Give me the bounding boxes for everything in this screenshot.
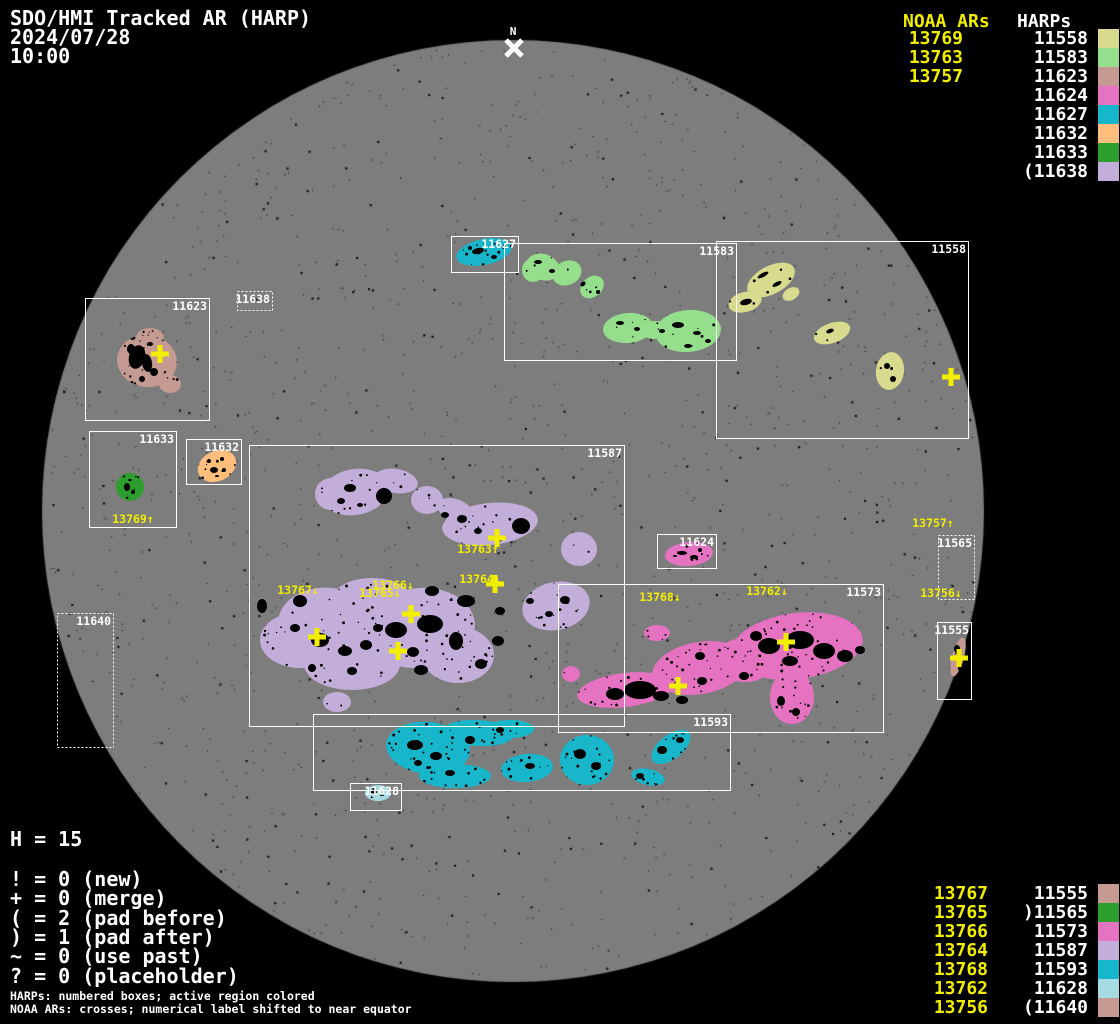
legend-row: 1376411587	[900, 941, 1119, 960]
sunspot-patch	[376, 488, 392, 504]
sunspot-patch	[758, 638, 780, 654]
legend-noaa-number: 13769	[909, 29, 963, 48]
legend-color-swatch	[1098, 922, 1119, 941]
legend-row: 1376911558	[900, 29, 1119, 48]
sunspot-patch	[855, 646, 865, 654]
legend-row: 11627	[900, 105, 1119, 124]
harp-box-label-11558: 11558	[931, 242, 966, 256]
legend-color-swatch	[1098, 67, 1119, 86]
noaa-ar-label-13762: 13762↓	[746, 584, 788, 598]
sunspot-patch	[526, 598, 534, 604]
region-blob	[561, 532, 597, 566]
footnote-noaa: NOAA ARs: crosses; numerical label shift…	[10, 1003, 412, 1015]
north-label: N	[510, 25, 517, 38]
sunspot-patch	[837, 650, 853, 662]
sunspot-patch	[338, 646, 352, 656]
legend-row: 1376611573	[900, 922, 1119, 941]
noaa-ar-label-13763: 13763↑	[457, 542, 499, 556]
sunspot-patch	[131, 490, 135, 494]
sunspot-patch	[468, 246, 472, 250]
sunspot-patch	[653, 691, 669, 701]
sunspot-patch	[890, 376, 896, 382]
sunspot-patch	[215, 475, 219, 477]
sunspot-patch	[813, 643, 835, 659]
region-blob	[640, 321, 670, 339]
legend-color-swatch	[1098, 903, 1119, 922]
sunspot-patch	[445, 770, 455, 776]
sunspot-patch	[491, 255, 497, 259]
region-blob	[562, 666, 580, 682]
noaa-ar-label-13768: 13768↓	[639, 590, 681, 604]
north-pole-cross	[506, 40, 522, 56]
sunspot-patch	[385, 622, 407, 638]
sunspot-patch	[695, 652, 705, 660]
sunspot-patch	[139, 376, 145, 382]
legend-harp-number: 11628	[1034, 979, 1088, 998]
legend-noaa-number: 13767	[934, 884, 988, 903]
harp-box-label-11565: 11565	[937, 536, 972, 550]
harp-box-label-11555: 11555	[934, 623, 969, 637]
sunspot-patch	[360, 640, 372, 650]
legend-row: (11638	[900, 162, 1119, 181]
legend-noaa-number: 13766	[934, 922, 988, 941]
sunspot-patch	[693, 331, 701, 335]
sunspot-patch	[676, 696, 688, 704]
sunspot-patch	[684, 344, 692, 348]
legend-harp-number: )11565	[1023, 903, 1088, 922]
sunspot-patch	[512, 518, 530, 534]
legend-harp-number: (11640	[1023, 998, 1088, 1017]
sunspot-patch	[127, 344, 135, 354]
sunspot-patch	[636, 773, 644, 779]
sunspot-patch	[495, 607, 505, 615]
sunspot-patch	[677, 551, 687, 555]
sunspot-patch	[337, 498, 345, 504]
sunspot-patch	[257, 599, 267, 613]
region-blob	[630, 766, 667, 789]
sunspot-patch	[884, 363, 890, 369]
sunspot-patch	[128, 479, 132, 481]
region-blob	[323, 692, 351, 712]
legend-color-swatch	[1098, 124, 1119, 143]
sunspot-patch	[672, 322, 684, 328]
legend-color-swatch	[1098, 48, 1119, 67]
sunspot-patch	[591, 762, 601, 770]
sunspot-patch	[496, 727, 504, 733]
sunspot-patch	[549, 269, 555, 273]
legend-color-swatch	[1098, 960, 1119, 979]
legend-harp-number: 11632	[1034, 124, 1088, 143]
legend-noaa-number: 13768	[934, 960, 988, 979]
legend-noaa-number: 13762	[934, 979, 988, 998]
legend-harp-number: 11627	[1034, 105, 1088, 124]
status-counter-line: ? = 0 (placeholder)	[10, 967, 239, 986]
sunspot-patch	[492, 636, 504, 646]
sunspot-patch	[124, 483, 130, 491]
legend-row: 1375711623	[900, 67, 1119, 86]
legend-color-swatch	[1098, 29, 1119, 48]
sunspot-patch	[659, 329, 665, 333]
legend-color-swatch	[1098, 979, 1119, 998]
sunspot-patch	[560, 596, 570, 604]
legend-harp-number: 11587	[1034, 941, 1088, 960]
sunspot-patch	[616, 321, 624, 325]
legend-color-swatch	[1098, 86, 1119, 105]
sunspot-patch	[457, 595, 475, 607]
legend-harp-number: 11573	[1034, 922, 1088, 941]
sunspot-patch	[475, 659, 487, 669]
sunspot-patch	[150, 368, 158, 376]
sunspot-patch	[782, 656, 798, 666]
active-region-11558	[726, 255, 907, 391]
sunspot-patch	[147, 342, 153, 346]
sunspot-patch	[357, 503, 363, 507]
legend-harp-number: 11555	[1034, 884, 1088, 903]
legend-harp-number: 11558	[1034, 29, 1088, 48]
legend-harp-number: 11593	[1034, 960, 1088, 979]
sunspot-patch	[705, 339, 711, 343]
legend-noaa-number: 13756	[934, 998, 988, 1017]
noaa-ar-label-13765: 13765↓	[359, 586, 401, 600]
sdo-hmi-harp-viewer: 1162711583115581162311638116331163211587…	[0, 0, 1120, 1024]
sunspot-patch	[407, 740, 423, 750]
harp-box-label-11573: 11573	[846, 585, 881, 599]
active-region-11633	[115, 473, 144, 501]
region-blob	[873, 350, 906, 392]
sunspot-patch	[634, 327, 640, 331]
sunspot-patch	[606, 688, 624, 700]
harp-box-label-11623: 11623	[172, 299, 207, 313]
active-region-11583	[522, 249, 723, 355]
legend-row: 1376311583	[900, 48, 1119, 67]
harp-box-label-11633: 11633	[139, 432, 174, 446]
harp-box-label-11628: 11628	[364, 784, 399, 798]
legend-harp-number: (11638	[1023, 162, 1088, 181]
legend-row: 13756(11640	[900, 998, 1119, 1017]
region-blob	[560, 735, 614, 785]
sunspot-patch	[525, 763, 535, 769]
sunspot-patch	[308, 664, 316, 672]
sunspot-patch	[777, 696, 785, 706]
harp-box-11558	[717, 242, 969, 439]
legend-row: 13765)11565	[900, 903, 1119, 922]
noaa-ar-label-13764: 13764↓	[459, 572, 501, 586]
legend-row: 1376811593	[900, 960, 1119, 979]
region-blob	[576, 271, 609, 303]
noaa-ar-label-13767: 13767↓	[277, 583, 319, 597]
legend-noaa-number: 13764	[934, 941, 988, 960]
harp-box-label-11640: 11640	[76, 614, 111, 628]
harp-box-label-11593: 11593	[693, 715, 728, 729]
noaa-ar-label-13756: 13756↓	[920, 586, 962, 600]
sunspot-patch	[739, 672, 749, 680]
region-blob	[388, 727, 428, 757]
sunspot-patch	[457, 515, 467, 523]
legend-color-swatch	[1098, 941, 1119, 960]
harp-box-label-11587: 11587	[587, 446, 622, 460]
sunspot-patch	[210, 467, 218, 473]
sunspot-patch	[414, 760, 422, 766]
region-blob	[770, 670, 814, 724]
legend-row: 11633	[900, 143, 1119, 162]
sunspot-patch	[344, 484, 356, 492]
active-region-11623	[114, 328, 182, 393]
legend-noaa-number: 13763	[909, 48, 963, 67]
sunspot-patch	[474, 528, 482, 534]
sunspot-patch	[750, 631, 762, 641]
harp-box-label-11632: 11632	[204, 440, 239, 454]
active-region-11593	[384, 718, 697, 789]
legend-noaa-number: 13757	[909, 67, 963, 86]
legend-color-swatch	[1098, 884, 1119, 903]
legend-color-swatch	[1098, 162, 1119, 181]
harp-box-label-11638: 11638	[235, 292, 270, 306]
region-blob	[315, 478, 347, 510]
sunspot-patch	[596, 290, 600, 294]
legend-row: 1376211628	[900, 979, 1119, 998]
legend-harp-number: 11624	[1034, 86, 1088, 105]
sunspot-patch	[697, 677, 707, 685]
sunspot-patch	[534, 260, 542, 264]
sunspot-patch	[417, 615, 443, 633]
legend-harp-number: 11583	[1034, 48, 1088, 67]
legend-color-swatch	[1098, 105, 1119, 124]
legend-row: 11624	[900, 86, 1119, 105]
harp-box-11640	[58, 614, 114, 748]
region-blob	[644, 625, 670, 641]
sunspot-patch	[222, 468, 226, 472]
sunspot-patch	[373, 624, 383, 632]
sunspot-patch	[624, 681, 656, 699]
time-label: 10:00	[10, 47, 70, 66]
sunspot-patch	[545, 611, 553, 617]
region-blob	[811, 317, 854, 349]
sunspot-patch	[414, 665, 428, 675]
sunspot-patch	[220, 457, 224, 461]
sunspot-patch	[676, 737, 684, 743]
sunspot-patch	[430, 752, 442, 760]
sunspot-patch	[574, 749, 586, 759]
region-blob	[411, 486, 443, 514]
region-blob	[645, 723, 696, 770]
legend-row: 11632	[900, 124, 1119, 143]
region-blob	[159, 375, 181, 393]
harp-count: H = 15	[10, 830, 82, 849]
sunspot-patch	[657, 746, 667, 754]
sunspot-patch	[441, 512, 449, 518]
legend-row: 1376711555	[900, 884, 1119, 903]
harp-box-label-11624: 11624	[679, 535, 714, 549]
sunspot-patch	[690, 555, 698, 559]
active-region-11573	[561, 605, 866, 725]
sunspot-patch	[425, 586, 439, 596]
legend-harp-number: 11623	[1034, 67, 1088, 86]
noaa-cross	[942, 368, 960, 386]
sunspot-patch	[465, 736, 475, 744]
noaa-ar-label-13757: 13757↑	[912, 516, 954, 530]
sunspot-patch	[407, 647, 419, 657]
sunspot-patch	[347, 667, 357, 675]
legend-color-swatch	[1098, 998, 1119, 1017]
legend-color-swatch	[1098, 143, 1119, 162]
sunspot-patch	[207, 459, 211, 463]
sunspot-patch	[290, 624, 300, 632]
sunspot-patch	[792, 708, 800, 716]
legend-harp-number: 11633	[1034, 143, 1088, 162]
sunspot-patch	[673, 555, 677, 557]
footnote-harps: HARPs: numbered boxes; active region col…	[10, 990, 315, 1002]
sunspot-patch	[449, 632, 463, 650]
noaa-ar-label-13769: 13769↑	[112, 512, 154, 526]
legend-noaa-number: 13765	[934, 903, 988, 922]
